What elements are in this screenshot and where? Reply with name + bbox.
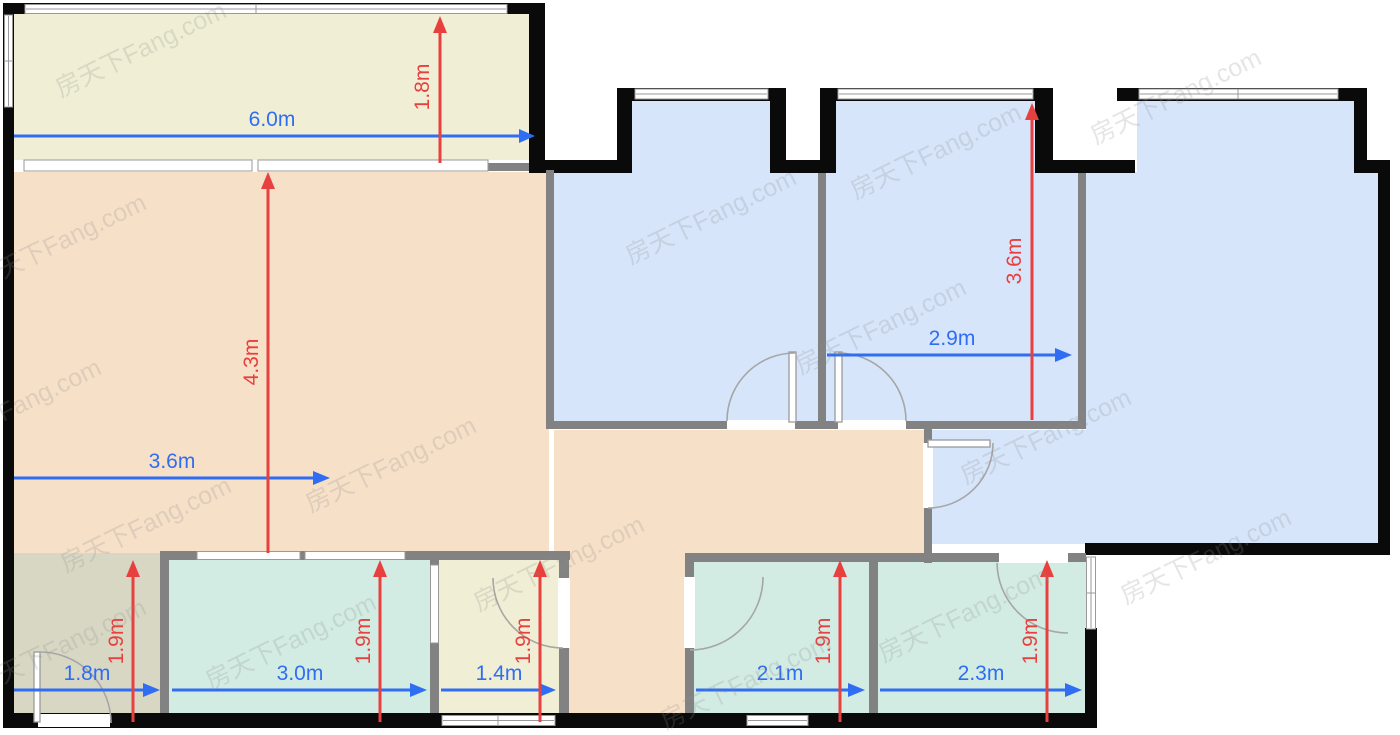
room-bedroom-middle-bay	[836, 101, 1036, 176]
dim-kitchen-width-label: 3.0m	[277, 662, 324, 686]
wall-balcony-right	[529, 3, 545, 173]
wall-right	[1378, 160, 1390, 555]
dim-balcony-depth-label: 1.8m	[411, 64, 435, 111]
wall-bed3-bottom	[1085, 543, 1390, 555]
opening-kitchen-2	[305, 552, 405, 560]
dim-kitchen-depth-label: 1.9m	[352, 618, 376, 665]
window-balcony-door-1	[24, 160, 252, 171]
dim-bath-width-label: 1.4m	[476, 662, 523, 686]
door-gap-smallleft	[684, 577, 695, 648]
dim-entry-width-label: 1.8m	[64, 662, 111, 686]
room-balcony	[14, 14, 529, 160]
floor-plan-drawing	[0, 0, 1400, 735]
room-living	[14, 172, 549, 553]
wall-entry-kitchen	[160, 551, 169, 713]
dim-living-width-label: 3.6m	[149, 450, 196, 474]
room-bedroom-right	[1086, 172, 1378, 544]
dim-bath-depth-label: 1.9m	[512, 618, 536, 665]
dim-smallright-width-label: 2.3m	[958, 662, 1005, 686]
door-leaf-entry	[34, 652, 40, 722]
wall-left	[3, 3, 14, 728]
door-gap-bed3	[923, 443, 933, 508]
door-gap-bath	[558, 578, 570, 648]
room-bedroom-left-bay	[632, 101, 770, 176]
door-leaf-bed2	[835, 352, 842, 422]
room-fills	[14, 14, 1378, 714]
floor-plan: 6.0m 3.6m 2.9m 1.8m 3.0m 1.4m 2.1m 2.3m …	[0, 0, 1400, 735]
room-hallway	[554, 430, 924, 553]
room-bedroom-left	[554, 173, 818, 423]
door-leaf-bed1	[789, 352, 796, 422]
wall-bed1-bed2	[818, 173, 826, 429]
dim-bed2-width-label: 2.9m	[929, 327, 976, 351]
room-bedroom-right-bay	[1137, 101, 1355, 176]
room-hallway-lower	[569, 553, 685, 713]
room-bedroom-middle	[826, 173, 1078, 423]
dim-balcony-width-label: 6.0m	[249, 108, 296, 132]
wall-bed2-bed3	[1078, 173, 1086, 429]
window-kitchen-bath	[431, 565, 439, 643]
window-balcony-door-2	[258, 160, 488, 171]
door-leaf-bed3	[928, 440, 990, 447]
dim-smallleft-width-label: 2.1m	[757, 662, 804, 686]
dim-bed2-depth-label: 3.6m	[1003, 238, 1027, 285]
dim-living-length-label: 4.3m	[240, 339, 264, 386]
door-gap-smallright	[999, 552, 1068, 563]
wall-living-bed1	[546, 170, 554, 429]
wall-smallleft-smallright	[869, 553, 878, 713]
door-gap-bed2	[838, 420, 906, 430]
door-gap-entry	[38, 714, 110, 727]
dim-entry-depth-label: 1.9m	[105, 618, 129, 665]
wall-notch2-bottom	[1035, 160, 1135, 173]
opening-kitchen-1	[197, 552, 300, 560]
dim-smallleft-depth-label: 1.9m	[812, 618, 836, 665]
door-gap-bed1	[727, 420, 795, 430]
dim-smallright-depth-label: 1.9m	[1019, 618, 1043, 665]
